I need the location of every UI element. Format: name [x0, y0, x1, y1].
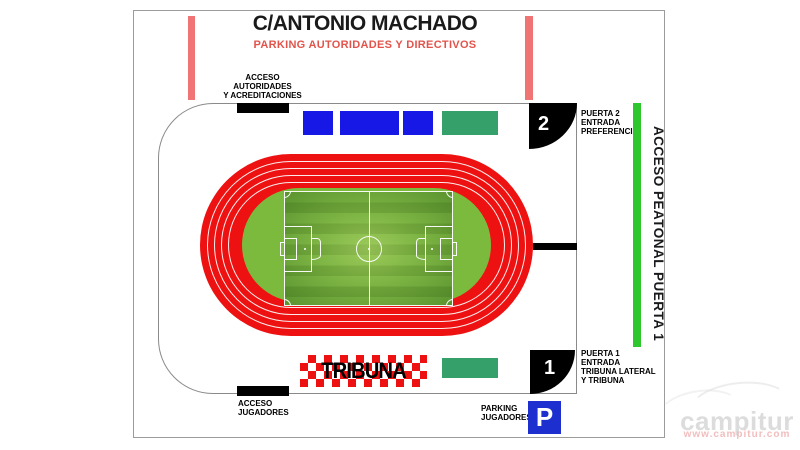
- acceso-jugadores-line1: ACCESO: [238, 399, 308, 408]
- pitch-goal-right: [452, 242, 457, 256]
- pitch-corner-arc-tl: [284, 191, 291, 198]
- acceso-autoridades-line2: AUTORIDADES: [205, 82, 320, 91]
- players-access-gate-bar: [237, 386, 289, 396]
- pitch-penalty-spot-right: [431, 248, 433, 250]
- watermark-url: www.campitur.com: [676, 429, 798, 440]
- gate-1-number: 1: [544, 357, 555, 380]
- blue-block-2: [340, 111, 399, 135]
- puerta-1-line3: TRIBUNA LATERAL: [581, 367, 656, 376]
- parking-jugadores-line1: PARKING: [481, 404, 527, 413]
- blue-block-3: [403, 111, 433, 135]
- pitch-goal-area-left: [284, 238, 297, 260]
- puerta-1-line4: Y TRIBUNA: [581, 376, 656, 385]
- acceso-autoridades-line1: ACCESO: [205, 73, 320, 82]
- street-title: C/ANTONIO MACHADO: [160, 12, 570, 36]
- parking-icon-letter: P: [536, 402, 553, 433]
- stadium-access-map: C/ANTONIO MACHADO PARKING AUTORIDADES Y …: [0, 0, 800, 450]
- pitch-corner-arc-br: [446, 299, 453, 306]
- green-block-bottom: [442, 358, 498, 378]
- pitch-penalty-arc-left: [312, 238, 321, 260]
- puerta-1-line2: ENTRADA: [581, 358, 656, 367]
- pitch-corner-arc-bl: [284, 299, 291, 306]
- pitch-penalty-spot-left: [304, 248, 306, 250]
- parking-icon: P: [528, 401, 561, 434]
- acceso-jugadores-label: ACCESO JUGADORES: [238, 399, 308, 417]
- gate-2-number: 2: [538, 113, 549, 136]
- football-pitch: [284, 191, 453, 306]
- pedestrian-access-bar: [633, 103, 641, 347]
- parking-jugadores-label: PARKING JUGADORES: [481, 404, 527, 422]
- acceso-autoridades-line3: Y ACREDITACIONES: [205, 91, 320, 100]
- pedestrian-access-label: ACCESO PEATONAL PUERTA 1: [644, 112, 666, 356]
- parking-jugadores-line2: JUGADORES: [481, 413, 527, 422]
- acceso-jugadores-line2: JUGADORES: [238, 408, 308, 417]
- pitch-goal-left: [280, 242, 285, 256]
- authorities-access-gate-bar: [237, 103, 289, 113]
- blue-block-1: [303, 111, 333, 135]
- pitch-center-spot: [368, 248, 370, 250]
- authorities-parking-label: PARKING AUTORIDADES Y DIRECTIVOS: [160, 39, 570, 51]
- tribuna-label: TRIBUNA: [301, 355, 425, 387]
- green-block-top: [442, 111, 498, 135]
- pitch-penalty-arc-right: [416, 238, 425, 260]
- pitch-corner-arc-tr: [446, 191, 453, 198]
- mid-right-gate-bar: [533, 243, 577, 250]
- acceso-autoridades-label: ACCESO AUTORIDADES Y ACREDITACIONES: [205, 73, 320, 100]
